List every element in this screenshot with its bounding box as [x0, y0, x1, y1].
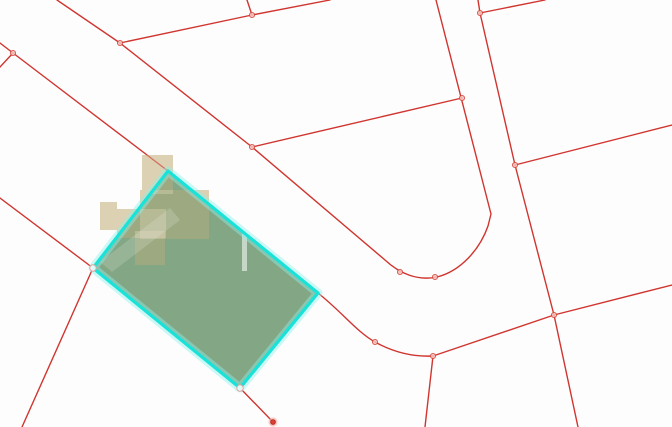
vertex-node-icon	[397, 269, 402, 274]
west-parcel-boundary	[0, 198, 93, 427]
vertex-node-icon	[551, 312, 556, 317]
vertex-node-icon	[459, 95, 464, 100]
parcel-corner-node-icon	[237, 385, 243, 391]
vertex-markers-layer	[10, 10, 556, 426]
vertex-node-icon	[117, 40, 122, 45]
vertex-node-icon	[512, 162, 517, 167]
south-branch-line	[425, 356, 433, 427]
parcel-corner-node-icon	[90, 265, 96, 271]
vertex-node-icon	[372, 339, 377, 344]
parcel-map-canvas[interactable]	[0, 0, 672, 427]
vertex-node-icon	[432, 274, 437, 279]
vertex-node-icon	[249, 12, 254, 17]
parcel-map-viewport	[0, 0, 672, 427]
line-endpoint-node-icon	[271, 420, 276, 425]
vertex-node-icon	[430, 353, 435, 358]
north-parcel-split-line	[120, 0, 330, 43]
east-parcel-line-lower	[554, 285, 672, 315]
mid-cross-boundary-line	[252, 98, 462, 147]
selected-parcel-south-stub	[240, 388, 273, 422]
east-parcel-line-upper	[515, 125, 672, 165]
northeast-corner-branch	[480, 0, 545, 13]
building-footprint-overlay	[100, 202, 117, 230]
vertex-node-icon	[10, 50, 15, 55]
vertical-road-east-edge	[478, 0, 578, 427]
vertex-node-icon	[249, 144, 254, 149]
vertex-node-icon	[477, 10, 482, 15]
